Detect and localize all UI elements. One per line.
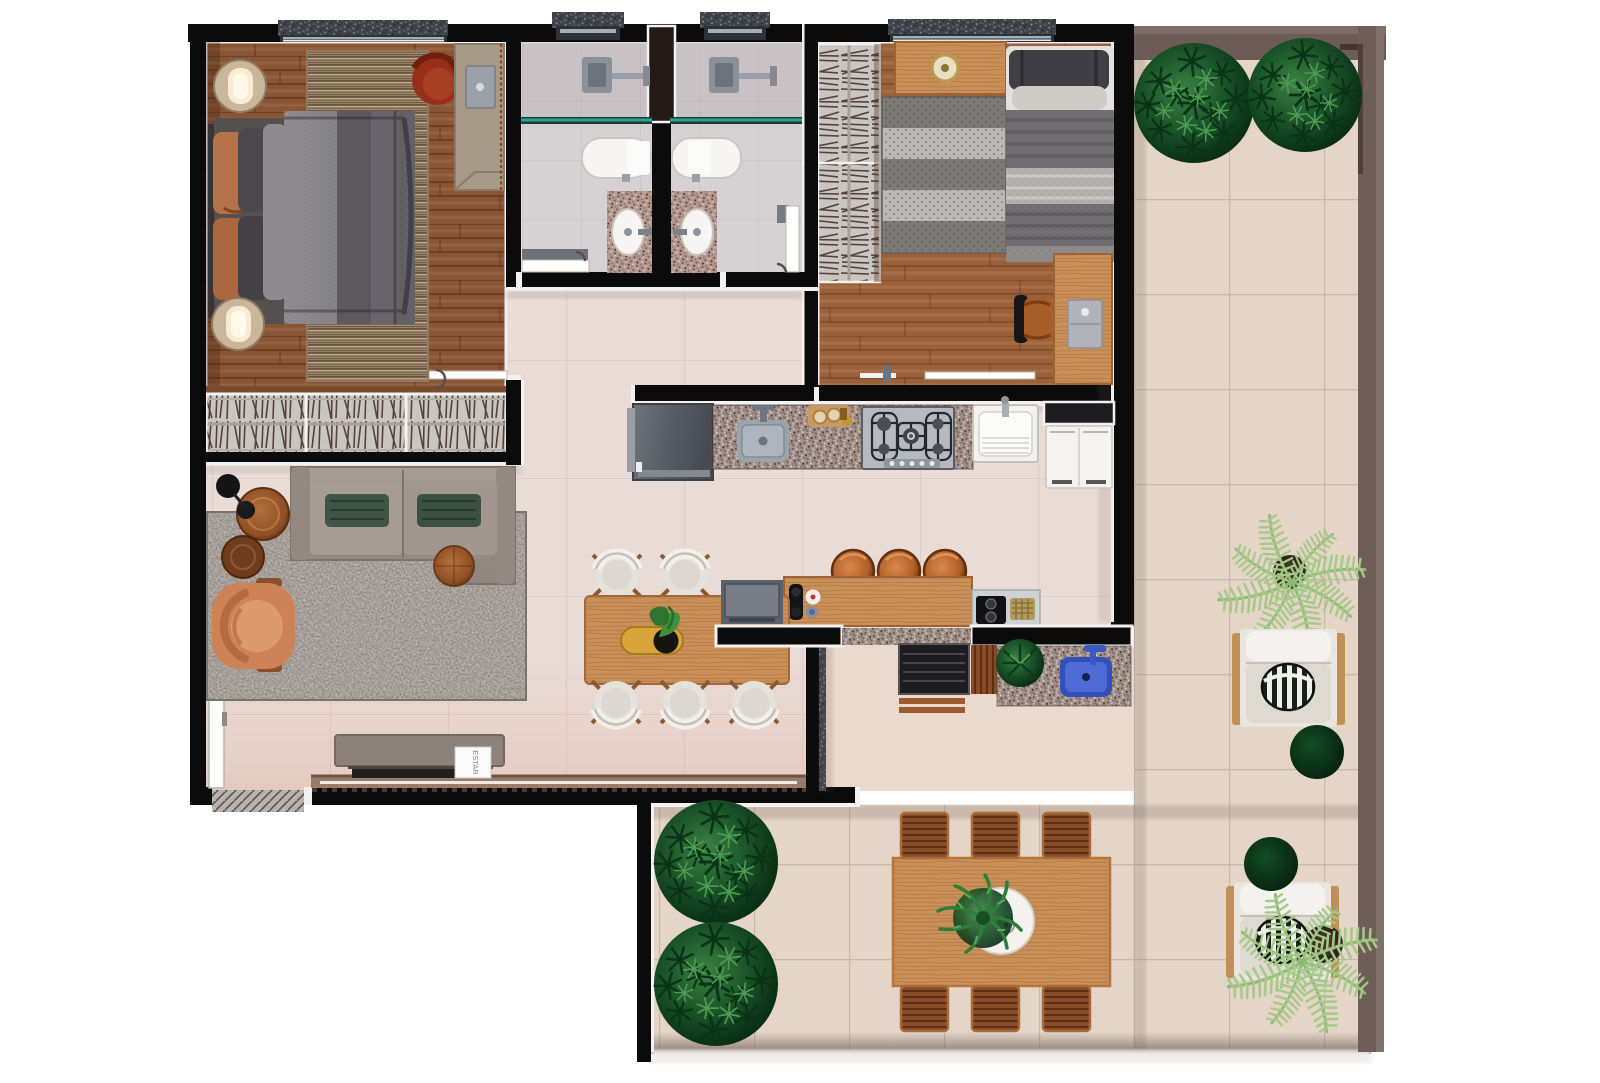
svg-text:ESTAR: ESTAR bbox=[471, 750, 480, 775]
